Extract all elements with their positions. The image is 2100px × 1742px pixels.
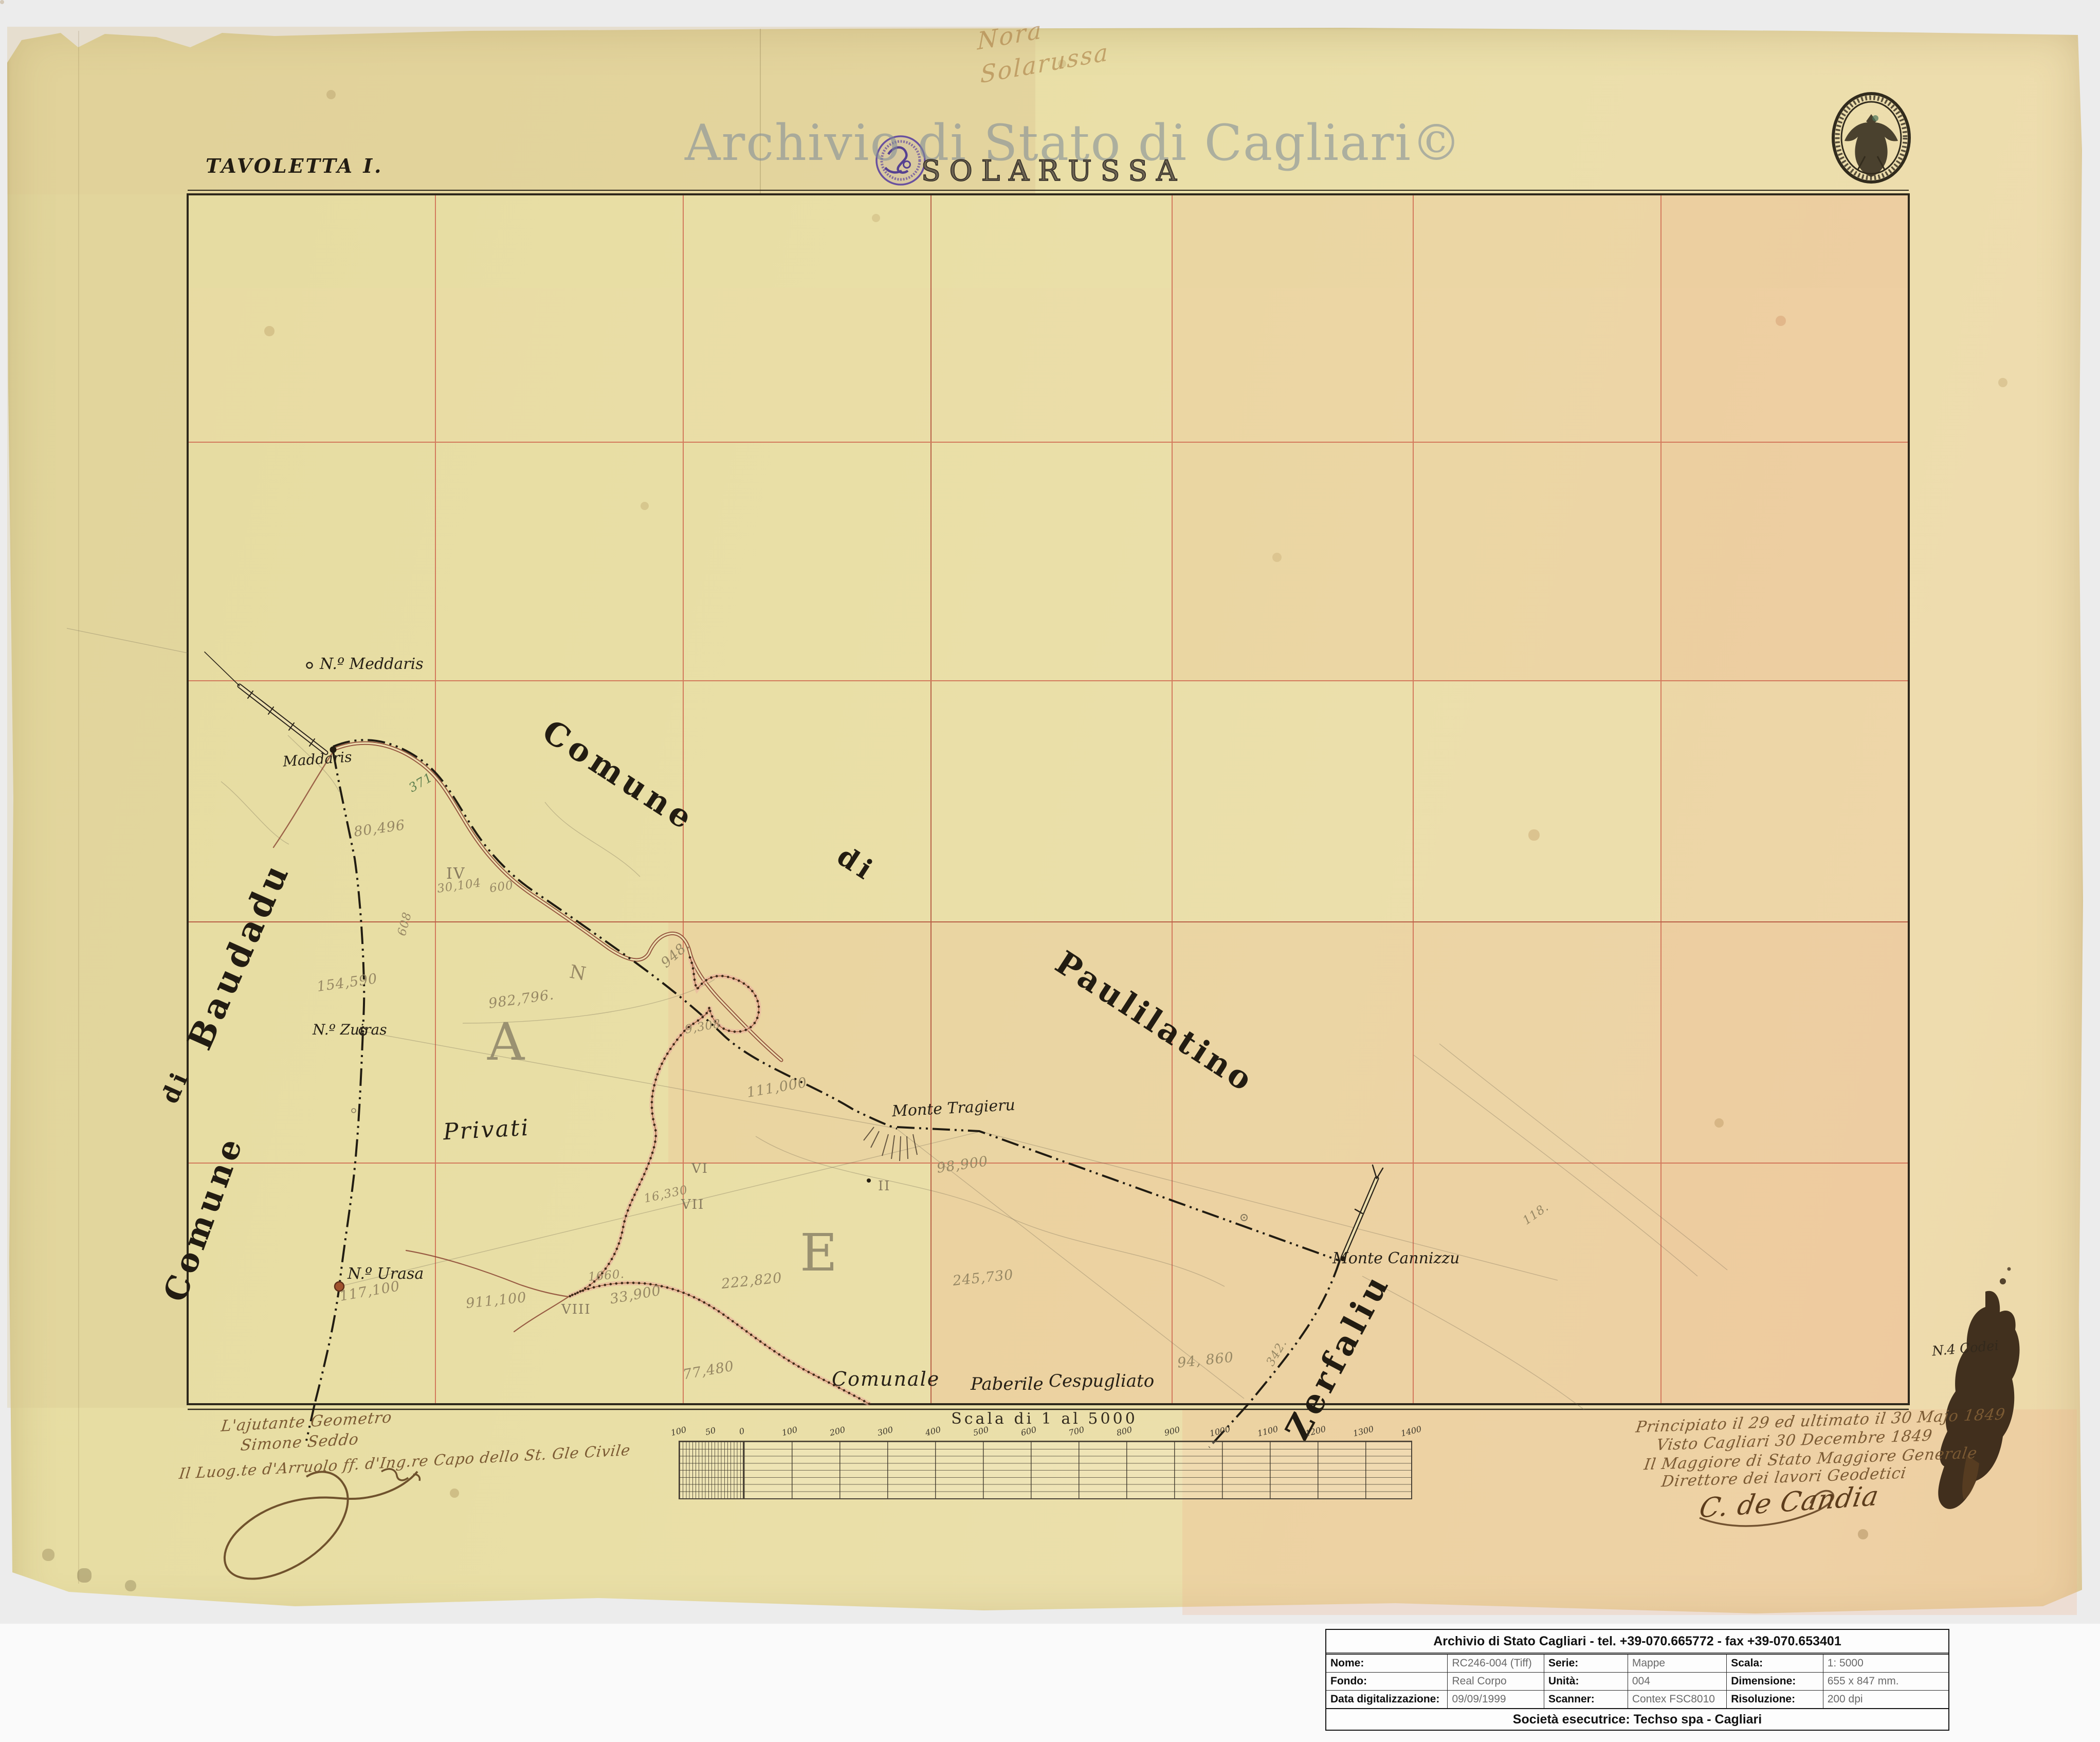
field-value-nome: RC246-004 (Tiff)	[1448, 1655, 1544, 1672]
numeral-vi: VI	[691, 1161, 708, 1176]
scale-bar-subdivision	[680, 1442, 744, 1498]
field-label-scala: Scala:	[1727, 1655, 1823, 1672]
field-label-risoluzione: Risoluzione:	[1727, 1691, 1823, 1708]
numeral-viii: VIII	[561, 1302, 591, 1317]
field-value-dimensione: 655 x 847 mm.	[1823, 1673, 1948, 1690]
table-row: Data digitalizzazione: 09/09/1999 Scanne…	[1326, 1690, 1948, 1708]
sheet-number-label: TAVOLETTA I.	[206, 154, 383, 177]
field-value-fondo: Real Corpo	[1448, 1673, 1544, 1690]
eagle-stamp	[1833, 94, 1909, 182]
region-label-cespugliato: Cespugliato	[1049, 1371, 1154, 1391]
field-label-nome: Nome:	[1326, 1655, 1448, 1672]
scale-bar	[679, 1441, 1412, 1499]
info-table-footer: Società esecutrice: Techso spa - Cagliar…	[1326, 1708, 1948, 1730]
scalebar-title: Scala di 1 al 5000	[679, 1410, 1410, 1428]
field-label-fondo: Fondo:	[1326, 1673, 1448, 1690]
section-letter-a: A	[487, 1012, 524, 1072]
field-value-risoluzione: 200 dpi	[1823, 1691, 1948, 1708]
signature-flourish-left	[225, 1469, 419, 1579]
field-label-unita: Unità:	[1544, 1673, 1628, 1690]
field-value-data-digitalizzazione: 09/09/1999	[1448, 1691, 1544, 1708]
field-value-serie: Mappe	[1628, 1655, 1727, 1672]
place-label-monte-cannizzu: Monte Cannizzu	[1332, 1249, 1459, 1267]
region-label-comunale: Comunale	[832, 1368, 940, 1390]
scanned-map-page: TAVOLETTA I. Archivio di Stato di Caglia…	[0, 0, 2100, 1742]
field-value-scanner: Contex FSC8010	[1628, 1691, 1727, 1708]
region-label-privati: Privati	[443, 1115, 531, 1146]
field-label-data-digitalizzazione: Data digitalizzazione:	[1326, 1691, 1448, 1708]
numeral-ii: II	[878, 1178, 891, 1194]
table-row: Nome: RC246-004 (Tiff) Serie: Mappe Scal…	[1326, 1654, 1948, 1672]
field-value-scala: 1: 5000	[1823, 1655, 1948, 1672]
place-label-n-meddaris: N.º Meddaris	[320, 655, 424, 673]
table-row: Fondo: Real Corpo Unità: 004 Dimensione:…	[1326, 1672, 1948, 1690]
numeral-vii: VII	[681, 1197, 704, 1212]
field-label-serie: Serie:	[1544, 1655, 1628, 1672]
scale-bar-grid	[744, 1442, 1411, 1498]
map-title: SOLARUSSA	[921, 154, 1185, 187]
place-label-n-zuiras: N.º Zuiras	[313, 1021, 387, 1038]
region-label-paberile: Paberile	[971, 1374, 1044, 1394]
field-label-scanner: Scanner:	[1544, 1691, 1628, 1708]
ink-blot	[1938, 1267, 2100, 1699]
archive-info-table: Archivio di Stato Cagliari - tel. +39-07…	[1325, 1629, 1949, 1731]
info-table-header: Archivio di Stato Cagliari - tel. +39-07…	[1326, 1630, 1948, 1654]
field-value-unita: 004	[1628, 1673, 1727, 1690]
section-letter-e: E	[800, 1223, 837, 1283]
field-label-dimensione: Dimensione:	[1727, 1673, 1823, 1690]
